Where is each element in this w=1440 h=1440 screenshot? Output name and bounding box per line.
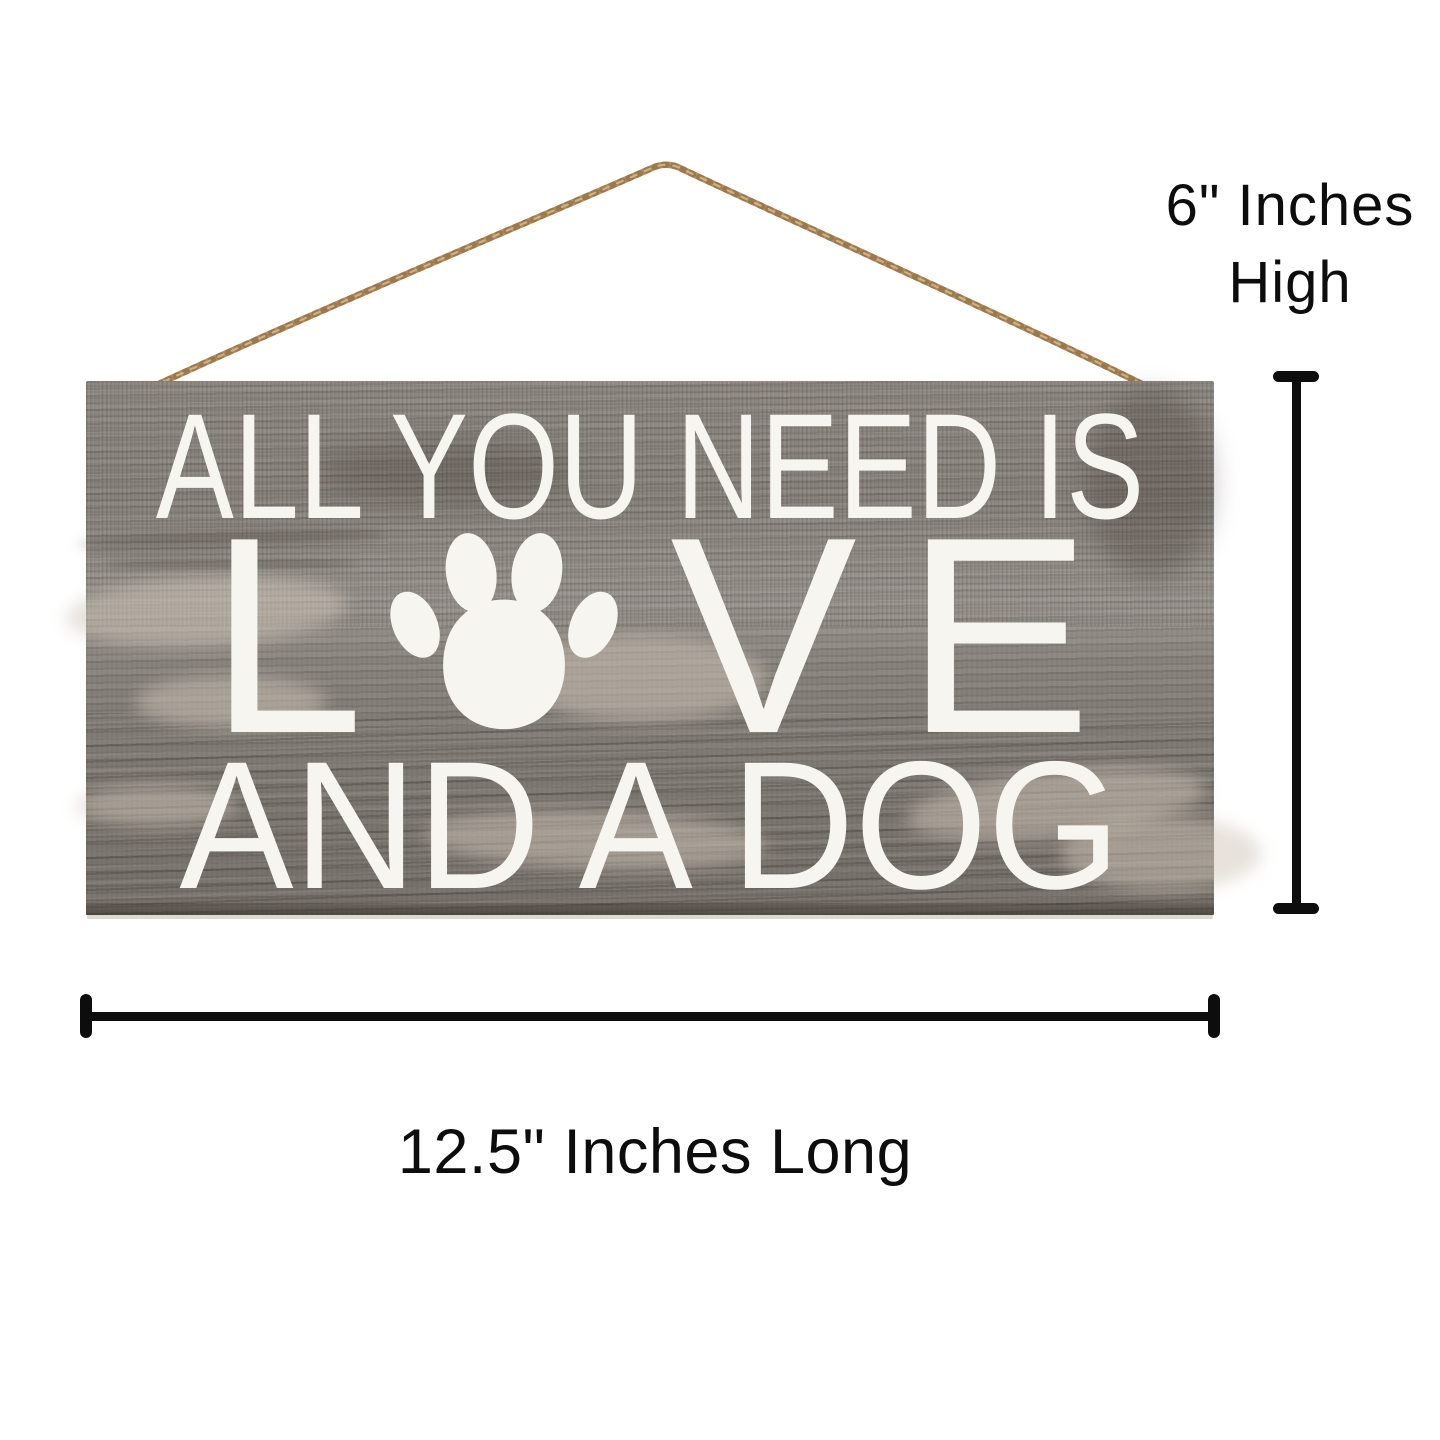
height-measurement-bottom-cap [1273,903,1319,914]
product-dimension-image: ALL YOU NEED IS L V E AND A DOG 6" Inche… [0,0,1440,1440]
twine-rope-hanger [100,138,1160,400]
sign-text-line3: AND A DOG [120,734,1180,916]
paw-print-icon [388,526,620,738]
wooden-sign: ALL YOU NEED IS L V E AND A DOG [86,381,1214,915]
height-dimension-label: 6" Inches High [1120,168,1440,321]
height-measurement-top-cap [1273,371,1319,382]
length-measurement-line [86,1012,1214,1021]
length-dimension-label: 12.5" Inches Long [330,1116,980,1188]
height-label-line1: 6" Inches [1120,168,1440,245]
height-label-line2: High [1120,245,1440,322]
length-measurement-right-cap [1208,994,1220,1038]
length-measurement-left-cap [80,994,92,1038]
height-measurement-line [1292,376,1301,912]
